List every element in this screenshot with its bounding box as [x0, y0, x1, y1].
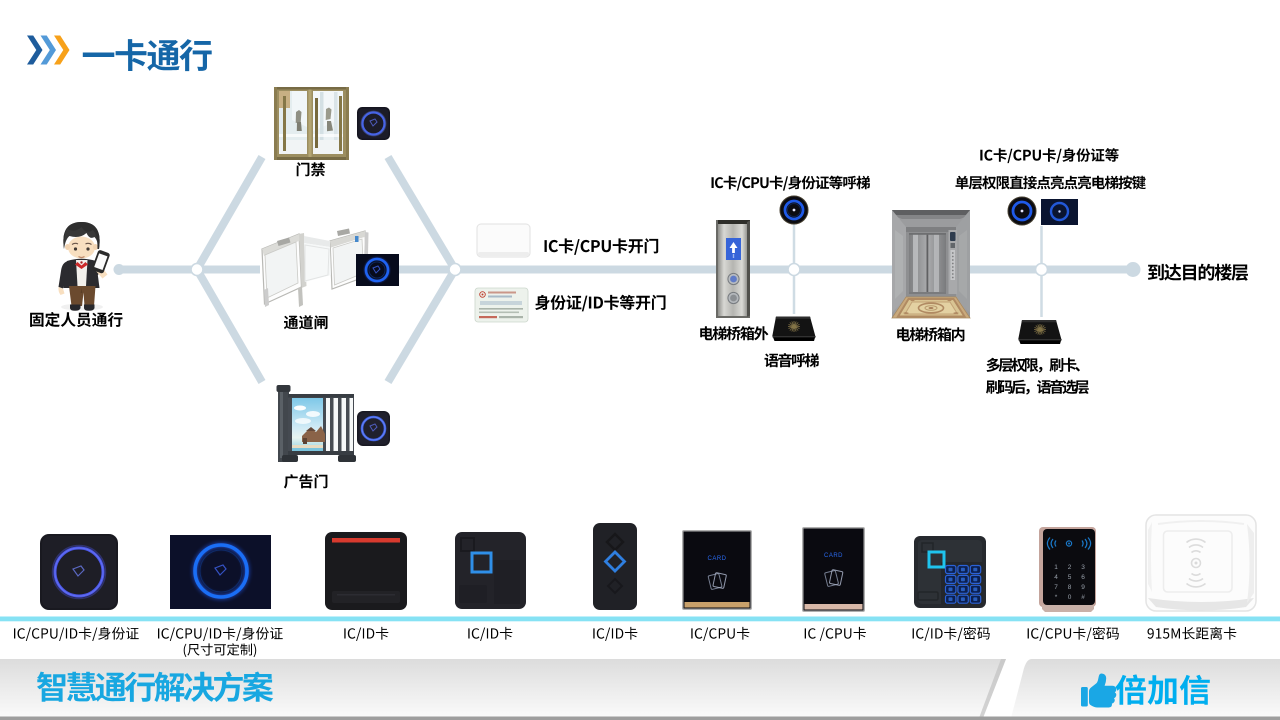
svg-text:9: 9	[1081, 584, 1085, 591]
svg-text:3: 3	[1081, 564, 1085, 571]
svg-text:0: 0	[1068, 594, 1072, 601]
svg-text:5: 5	[1068, 574, 1072, 581]
svg-text:8: 8	[1068, 584, 1072, 591]
svg-text:4: 4	[1054, 574, 1058, 581]
svg-text:#: #	[1081, 594, 1085, 601]
svg-text:CARD: CARD	[824, 553, 843, 559]
svg-text:CARD: CARD	[707, 556, 726, 562]
svg-text:1: 1	[1054, 564, 1058, 571]
svg-text:2: 2	[1068, 564, 1072, 571]
svg-text:6: 6	[1081, 574, 1085, 581]
svg-text:7: 7	[1054, 584, 1058, 591]
